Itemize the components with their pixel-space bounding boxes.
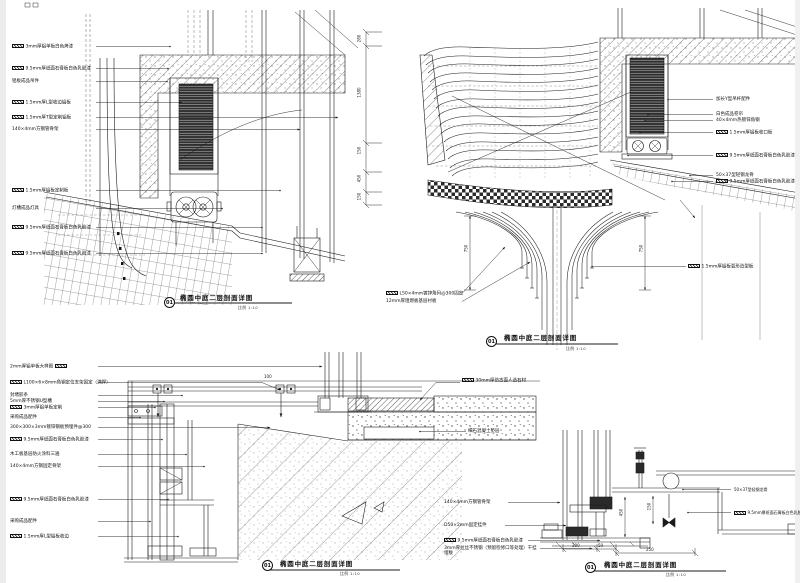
material-label: 40×4mm热镀锌角钢 [716,118,760,123]
material-label: 9.5mm厚纸面石膏板白色乳胶漆 [444,538,523,544]
d4-mullion [542,430,612,540]
material-tag-icon [10,534,22,538]
material-tag-icon [386,291,398,295]
material-label: L100×6×8mm角钢定位支架固定（满焊） [10,380,111,386]
detail-scale: 比例 1:10 [238,305,258,311]
d1-roller-blind-box [170,78,302,196]
material-label: 9.5mm厚纸面石膏板白色乳胶漆 [12,251,91,257]
material-label: 9.5mm厚纸面石膏板白色乳胶漆 [12,225,91,231]
detail-number-badge: 01 [585,562,596,573]
material-label: 12mm厚阻燃板基层衬板 [386,299,437,304]
material-label: 灯槽成品灯具 [12,206,39,211]
material-tag-icon [10,380,22,384]
material-label: 封堵胶条 [10,393,28,398]
material-label: 9.5mm厚纸面石膏板白色乳胶漆 [734,510,800,515]
dimension-label: 450 [357,171,362,187]
material-label: 1.5mm厚L型铝板收边 [10,534,69,540]
detail-title: 椭圆中庭二层剖面详图 [604,559,677,569]
detail-number-badge: 01 [164,297,175,308]
d4-hanger-rod [634,448,646,488]
material-label: 采购成品配件 [10,519,37,524]
d4-leader-lines [683,490,731,513]
material-tag-icon [716,179,728,183]
material-label: 50×37型轻钢龙骨 [734,487,768,492]
detail-number-badge: 01 [262,560,273,571]
material-label: 铝板成品吊件 [12,79,39,84]
page-right-edge [795,0,800,583]
dimension-label: 50 [598,543,603,548]
d4-sill [540,538,650,548]
material-tag-icon [12,100,24,104]
material-label: 3mm厚铝单板白色烤漆 [12,44,73,50]
material-tag-icon [10,497,22,501]
dimension-label: 250 [646,547,654,552]
material-label: 9.5mm厚纸面石膏板白色乳胶漆 [10,497,89,503]
material-tag-icon [12,225,24,229]
dimension-label: 450 [619,505,624,521]
material-label: 木工板基层防火涂料三遍 [10,452,60,457]
material-tag-icon [734,511,746,515]
material-label: 3mm厚铝单板定制 [10,405,62,411]
material-label: 采购成品配件 [10,415,37,420]
detail-scale: 比例 1:10 [666,572,686,578]
material-label: 5mm厚不锈钢U型槽 [10,399,52,404]
sheet-corner-marks [25,3,38,7]
d2-trumpet-column [456,198,658,350]
dimension-label: 750 [464,241,469,257]
material-label: 细石混凝土垫层 [468,429,500,434]
detail-number-badge: 01 [486,336,497,347]
detail-title: 椭圆中庭二层剖面详图 [504,332,577,342]
material-label: 50×37型轻钢龙骨 [716,173,754,178]
detail-title: 椭圆中庭二层剖面详图 [180,292,253,302]
d4-adjustable-hanger [663,494,675,527]
material-label: 1.5mm厚铝板定制板 [12,188,68,194]
dimension-label: 100 [264,374,272,379]
material-label: 9.5mm厚纸面石膏板白色乳胶漆 [716,179,795,185]
material-label: 140×4mm方钢管骨架 [12,127,59,132]
material-label: 1.5mm厚L型收边铝板 [12,100,71,106]
material-label: 白色成品卷帘 [716,112,743,117]
detail-3-section [98,352,600,570]
material-tag-icon [462,378,474,382]
dimension-label: 1380 [357,85,362,101]
dimension-label: 280 [357,31,362,47]
material-label: 140×4mm方钢固定骨架 [10,464,61,469]
material-label: 加长Y型吊杆配件 [716,97,750,102]
material-tag-icon [10,437,22,441]
material-tag-icon [12,66,24,70]
material-label: 1.5mm厚T型定制铝板 [12,115,71,121]
material-label: D50×2mm固定挂件 [444,523,487,528]
material-tag-icon [12,188,24,192]
dimension-label: 200 [572,543,580,548]
material-label: 1.5mm厚铝板弧形造型板 [688,264,753,270]
material-label: 1.5mm厚铝板收口板 [716,130,772,136]
detail-4-section [540,430,800,571]
dimension-label: 150 [647,499,652,515]
material-tag-icon [716,153,728,157]
material-tag-icon [688,264,700,268]
material-label: 9.5mm厚纸面石膏板白色乳胶漆 [716,153,795,159]
detail-scale: 比例 1:10 [566,346,586,352]
d2-left-concrete [420,55,445,165]
material-tag-icon [716,130,728,134]
d2-right-structure [600,8,800,340]
material-tag-icon [12,44,24,48]
page-left-edge [0,0,6,583]
material-label: L50×4mm镀锌角码@300固定 [386,291,463,297]
material-label: 300×300×3mm镀锌钢板预埋件@300 [10,425,91,430]
d1-curtain-mullions [262,10,334,263]
d4-ceiling [612,448,800,534]
material-tag-icon [55,364,67,368]
dimension-label: 150 [357,189,362,205]
d3-wall-assembly [124,381,238,562]
d4-duct-circle [663,473,679,489]
d3-concrete-slab [238,424,462,560]
d2-checker-band [428,180,612,208]
material-tag-icon [444,538,456,542]
d1-concrete-slab [140,55,345,198]
material-tag-icon [12,115,24,119]
material-label: 2mm厚铝单板大样图 [10,364,67,370]
detail-title: 椭圆中庭二层剖面详图 [280,558,353,568]
material-tag-icon [10,405,22,409]
material-label: 140×4mm方钢管骨架 [444,500,491,505]
dimension-label: 750 [639,241,644,257]
material-label: 3mm厚拉丝不锈钢（预留检修口等处理）干挂埋板 [444,546,540,556]
detail-scale: 比例 1:10 [340,571,360,577]
detail-1-section [44,10,358,305]
material-label: 9.5mm厚纸面石膏板白色乳胶漆 [12,66,91,72]
drawing-sheet: 3mm厚铝单板白色烤漆 9.5mm厚纸面石膏板白色乳胶漆 铝板成品吊件 1.5m… [0,0,800,583]
dimension-label: 150 [357,143,362,159]
d1-light-fixture [290,226,324,281]
material-label: 30mm厚仿古面人造石材 [462,378,526,384]
material-tag-icon [12,251,24,255]
d3-floor-buildup [348,396,536,440]
material-label: 9.5mm厚纸面石膏板白色乳胶漆 [10,437,89,443]
